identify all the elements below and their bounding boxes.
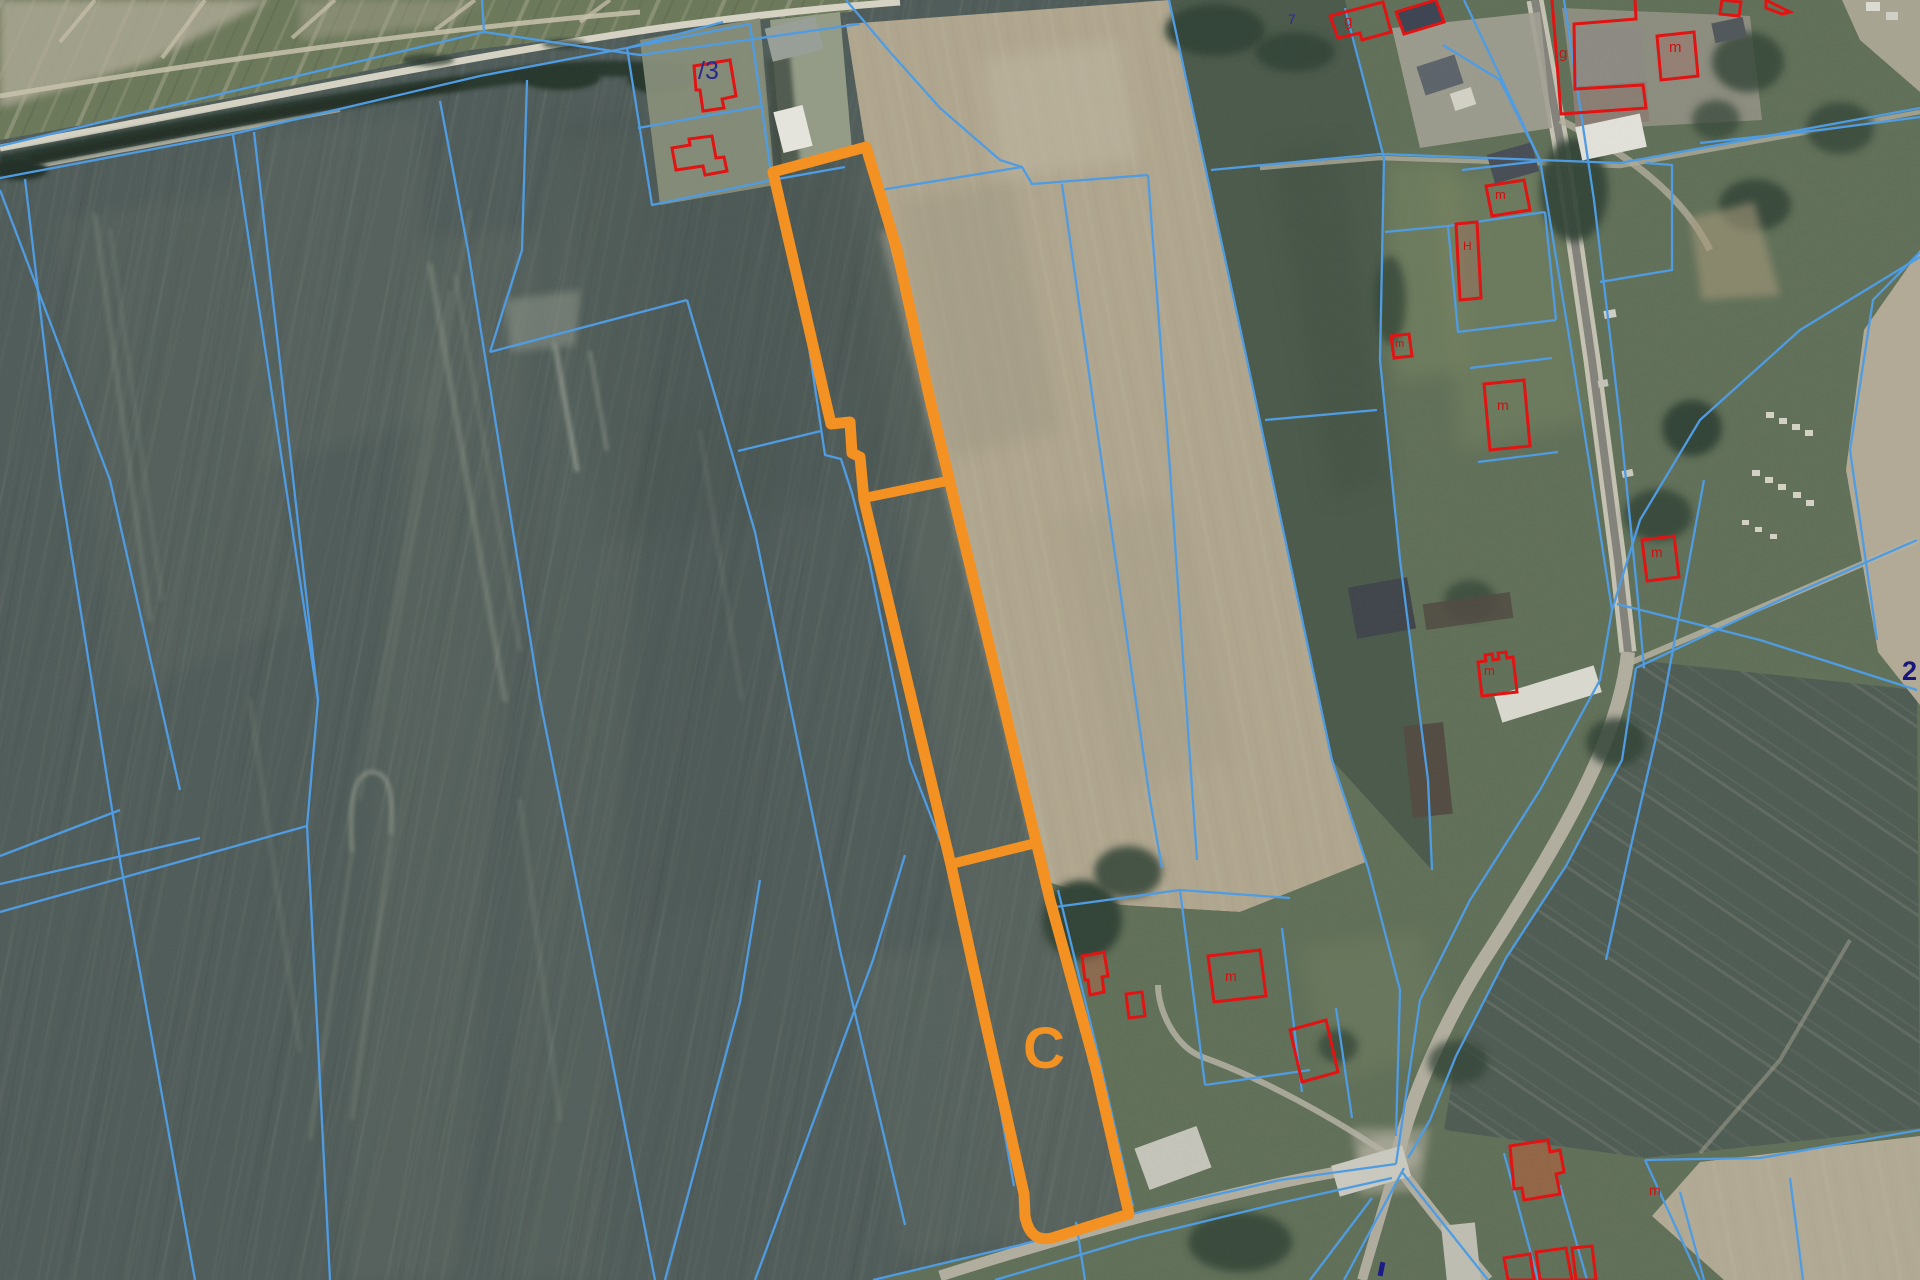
- svg-text:m: m: [1484, 663, 1495, 678]
- svg-text:/3: /3: [698, 57, 719, 85]
- svg-text:7: 7: [1288, 11, 1296, 27]
- svg-text:g: g: [1559, 45, 1567, 62]
- svg-text:g: g: [1344, 13, 1352, 30]
- svg-text:H: H: [1463, 239, 1472, 253]
- svg-text:C: C: [1023, 1016, 1065, 1081]
- svg-text:m: m: [1669, 39, 1682, 56]
- svg-text:m: m: [1649, 1182, 1661, 1198]
- svg-text:m: m: [1225, 968, 1237, 984]
- svg-text:2: 2: [1902, 656, 1917, 686]
- svg-text:m: m: [1395, 338, 1404, 350]
- svg-text:m: m: [1651, 544, 1663, 560]
- svg-text:m: m: [1495, 187, 1506, 202]
- svg-text:m: m: [1497, 397, 1509, 413]
